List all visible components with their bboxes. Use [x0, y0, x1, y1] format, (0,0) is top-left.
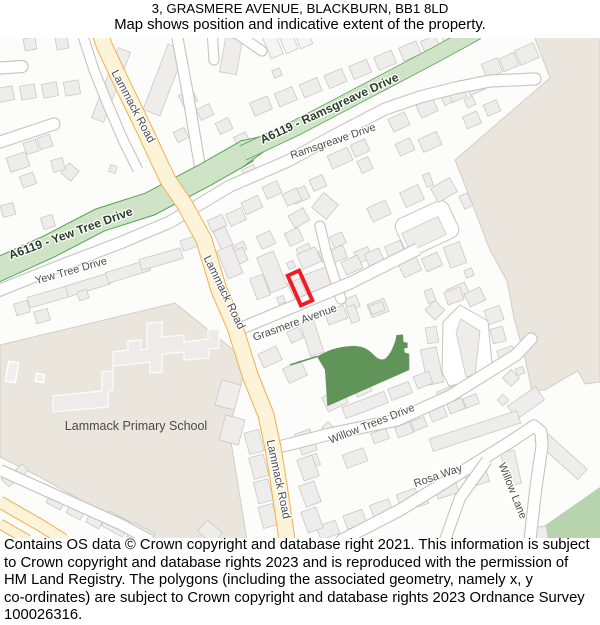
svg-text:Lammack Primary School: Lammack Primary School — [65, 419, 207, 433]
